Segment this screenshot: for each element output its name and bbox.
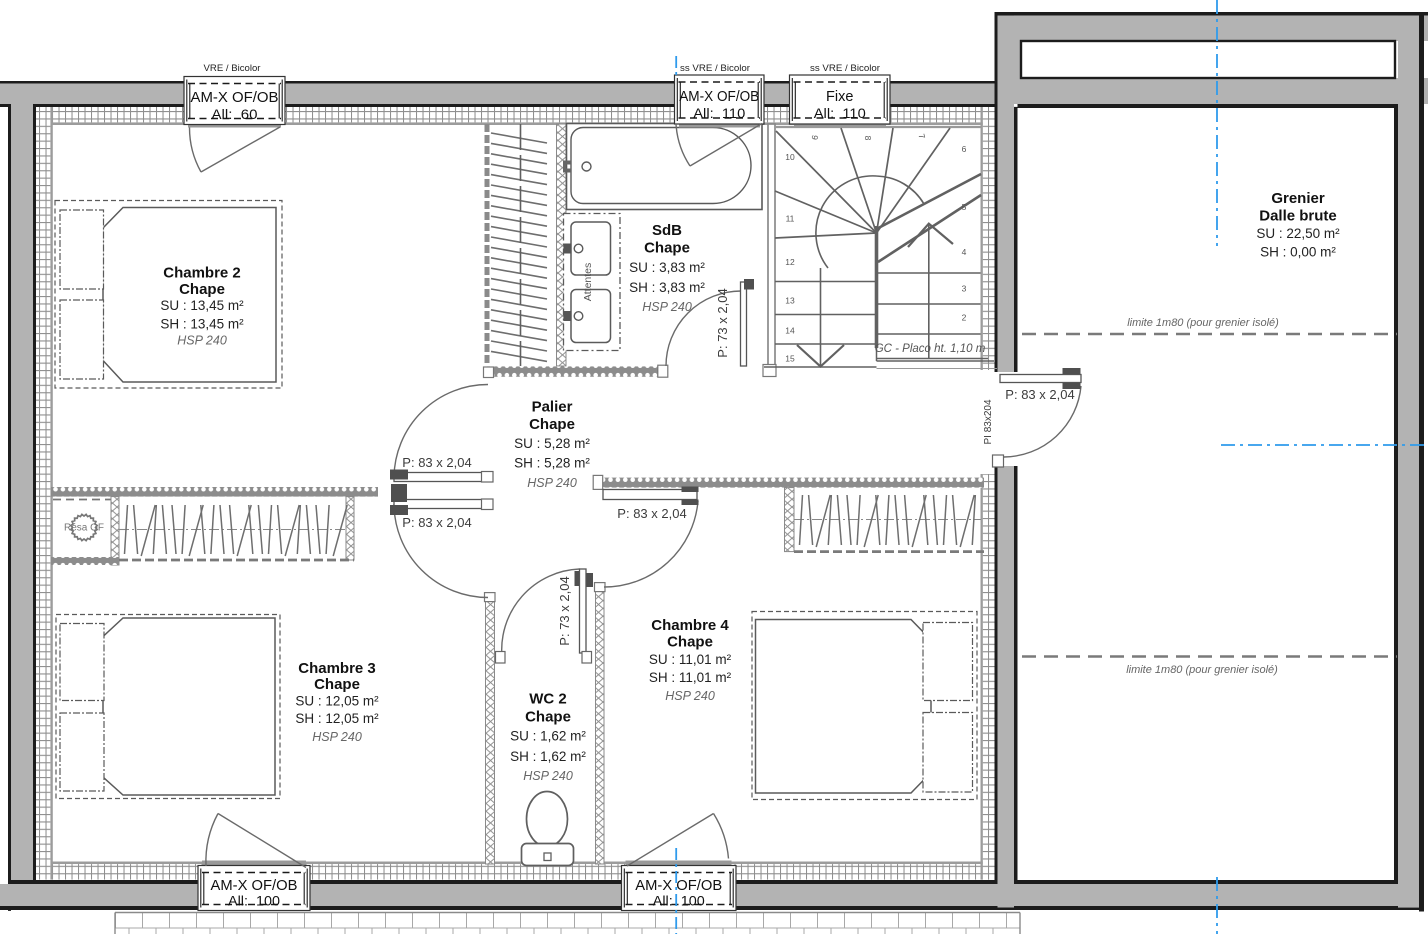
- svg-text:All: 110: All: 110: [814, 105, 866, 121]
- svg-text:All: 100: All: 100: [653, 893, 705, 909]
- svg-text:14: 14: [785, 326, 795, 336]
- svg-text:All: 60: All: 60: [212, 106, 258, 122]
- svg-text:Palier: Palier: [532, 399, 573, 416]
- svg-text:Résa OF: Résa OF: [64, 523, 104, 534]
- svg-text:10: 10: [785, 152, 795, 162]
- svg-text:Fixe: Fixe: [826, 89, 853, 105]
- svg-text:SH : 13,45 m²: SH : 13,45 m²: [160, 317, 244, 332]
- svg-text:Chape: Chape: [179, 281, 225, 298]
- svg-text:SH : 0,00 m²: SH : 0,00 m²: [1260, 245, 1336, 260]
- svg-text:SU : 3,83 m²: SU : 3,83 m²: [629, 260, 705, 275]
- svg-text:GC - Placo ht. 1,10 m: GC - Placo ht. 1,10 m: [875, 343, 986, 355]
- svg-text:HSP 240: HSP 240: [527, 476, 577, 490]
- svg-text:P: 73 x 2,04: P: 73 x 2,04: [557, 576, 572, 645]
- svg-text:P: 73 x 2,04: P: 73 x 2,04: [715, 288, 730, 357]
- svg-text:WC 2: WC 2: [529, 691, 567, 708]
- svg-text:SH : 12,05 m²: SH : 12,05 m²: [295, 711, 379, 726]
- svg-text:Chape: Chape: [525, 709, 571, 726]
- svg-text:AM-X OF/OB: AM-X OF/OB: [211, 878, 298, 894]
- svg-text:SH : 1,62 m²: SH : 1,62 m²: [510, 749, 586, 764]
- svg-text:Chape: Chape: [644, 240, 690, 257]
- svg-text:HSP 240: HSP 240: [642, 300, 692, 314]
- svg-text:SU : 1,62 m²: SU : 1,62 m²: [510, 729, 586, 744]
- svg-text:5: 5: [962, 202, 967, 212]
- svg-text:All: 110: All: 110: [693, 105, 745, 121]
- svg-text:Grenier: Grenier: [1271, 190, 1325, 207]
- svg-text:AM-X OF/OB: AM-X OF/OB: [679, 89, 759, 105]
- svg-text:limite 1m80 (pour grenier isol: limite 1m80 (pour grenier isolé): [1127, 317, 1279, 329]
- svg-text:All: 100: All: 100: [228, 893, 280, 909]
- svg-text:Chape: Chape: [314, 676, 360, 693]
- svg-text:SU : 13,45 m²: SU : 13,45 m²: [160, 298, 244, 313]
- svg-text:SH : 3,83 m²: SH : 3,83 m²: [629, 280, 705, 295]
- svg-text:11: 11: [786, 214, 795, 224]
- svg-text:HSP 240: HSP 240: [312, 730, 362, 744]
- svg-text:limite 1m80 (pour grenier isol: limite 1m80 (pour grenier isolé): [1126, 664, 1278, 676]
- svg-text:8: 8: [863, 136, 873, 141]
- svg-text:Chambre 2: Chambre 2: [163, 265, 241, 282]
- svg-text:ss VRE / Bicolor: ss VRE / Bicolor: [810, 63, 880, 74]
- svg-text:3: 3: [962, 284, 967, 294]
- svg-text:Chape: Chape: [529, 416, 575, 433]
- svg-text:6: 6: [962, 144, 967, 154]
- svg-text:P: 83 x 2,04: P: 83 x 2,04: [1005, 387, 1074, 402]
- svg-text:Attentes: Attentes: [582, 263, 594, 302]
- svg-text:SU : 22,50 m²: SU : 22,50 m²: [1256, 226, 1340, 241]
- svg-text:SU : 11,01 m²: SU : 11,01 m²: [649, 652, 732, 667]
- svg-text:12: 12: [785, 257, 795, 267]
- svg-text:AM-X OF/OB: AM-X OF/OB: [191, 90, 279, 106]
- svg-text:P: 83 x 2,04: P: 83 x 2,04: [402, 515, 471, 530]
- svg-text:HSP 240: HSP 240: [177, 334, 227, 348]
- svg-text:SU : 12,05 m²: SU : 12,05 m²: [295, 694, 379, 709]
- svg-text:Dalle brute: Dalle brute: [1259, 208, 1337, 225]
- svg-text:HSP 240: HSP 240: [665, 689, 715, 703]
- svg-text:15: 15: [785, 354, 795, 364]
- svg-text:2: 2: [962, 313, 967, 323]
- svg-text:13: 13: [785, 296, 795, 306]
- svg-text:Chambre 4: Chambre 4: [651, 617, 729, 634]
- svg-text:AM-X OF/OB: AM-X OF/OB: [635, 878, 722, 894]
- svg-text:PI 83x204: PI 83x204: [983, 399, 994, 444]
- svg-text:SH : 11,01 m²: SH : 11,01 m²: [649, 670, 732, 685]
- svg-text:Chape: Chape: [667, 634, 713, 651]
- svg-text:SH : 5,28 m²: SH : 5,28 m²: [514, 456, 590, 471]
- svg-text:ss VRE / Bicolor: ss VRE / Bicolor: [680, 63, 750, 74]
- svg-text:VRE / Bicolor: VRE / Bicolor: [204, 63, 261, 74]
- svg-text:SU : 5,28 m²: SU : 5,28 m²: [514, 436, 590, 451]
- svg-text:P: 83 x 2,04: P: 83 x 2,04: [617, 506, 686, 521]
- svg-text:SdB: SdB: [652, 222, 682, 239]
- svg-text:P: 83 x 2,04: P: 83 x 2,04: [402, 455, 471, 470]
- svg-text:Chambre 3: Chambre 3: [298, 660, 376, 677]
- svg-text:HSP 240: HSP 240: [523, 769, 573, 783]
- svg-text:4: 4: [962, 247, 967, 257]
